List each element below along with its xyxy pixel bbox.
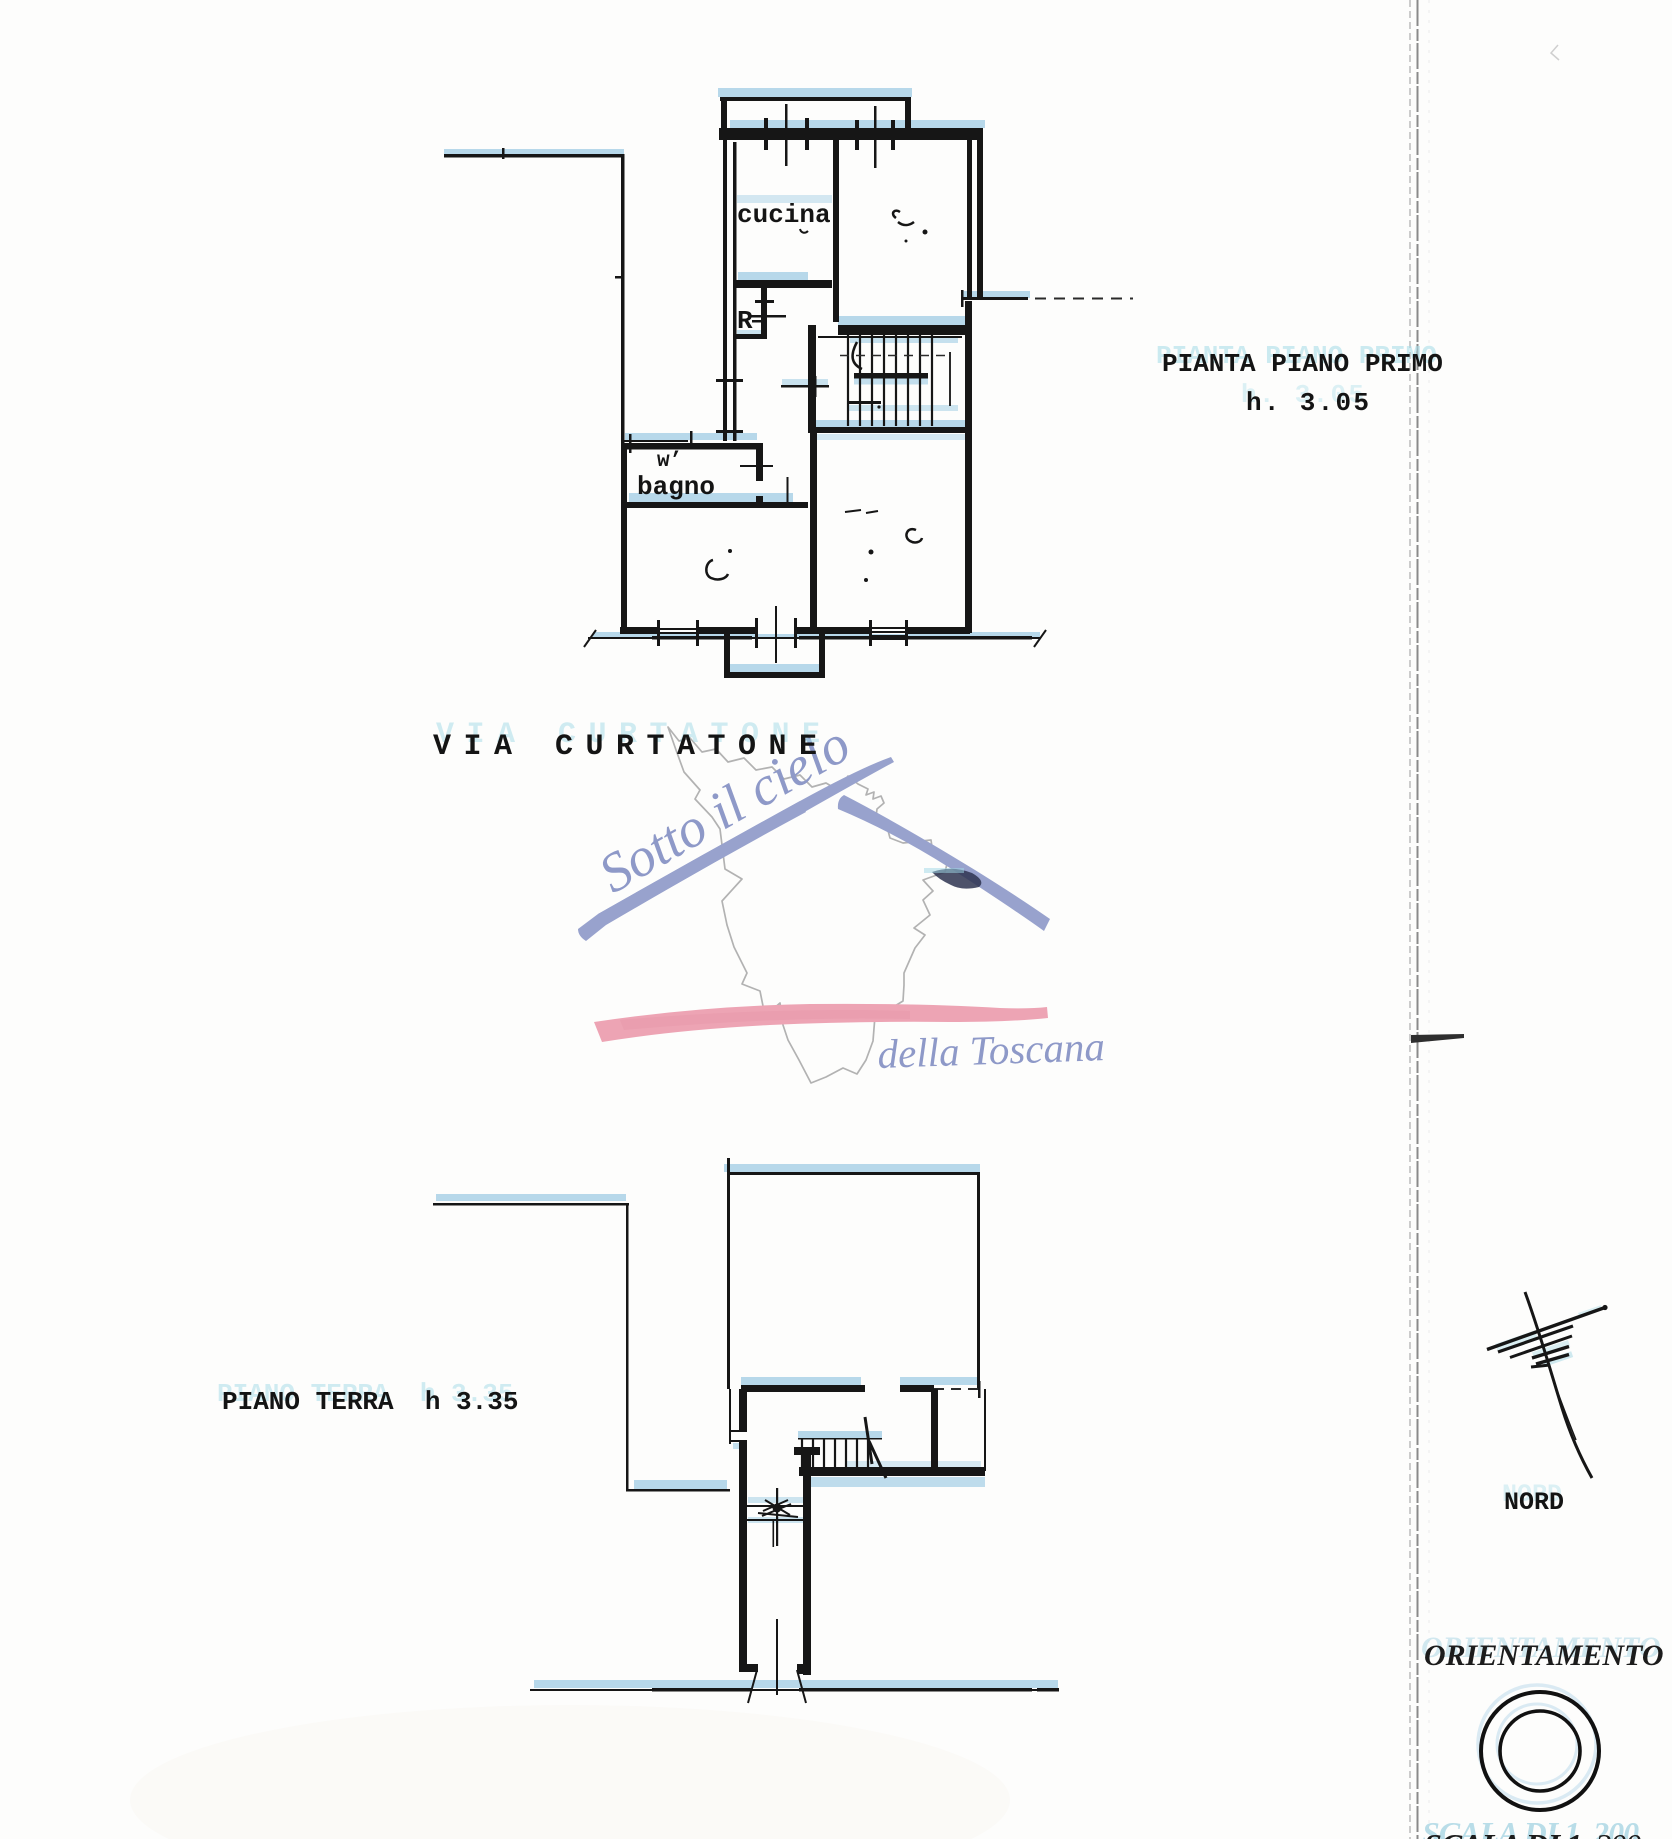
svg-text:h. 3.05: h. 3.05 [1246,388,1371,418]
svg-text:bagno: bagno [637,472,715,502]
svg-text:SCALA DI 1. 200: SCALA DI 1. 200 [1424,1827,1641,1839]
svg-text:PIANTA PIANO PRIMO: PIANTA PIANO PRIMO [1162,349,1443,379]
svg-text:ORIENTAMENTO: ORIENTAMENTO [1424,1639,1664,1672]
svg-text:VIA CURTATONE: VIA CURTATONE [433,730,830,764]
svg-text:R: R [737,306,753,336]
svg-text:w’: w’ [657,450,682,473]
svg-text:PIANO TERRA h 3.35: PIANO TERRA h 3.35 [222,1387,518,1417]
svg-text:NORD: NORD [1504,1488,1564,1517]
svg-text:cucina: cucina [737,200,831,230]
svg-text:della Toscana: della Toscana [877,1023,1106,1077]
